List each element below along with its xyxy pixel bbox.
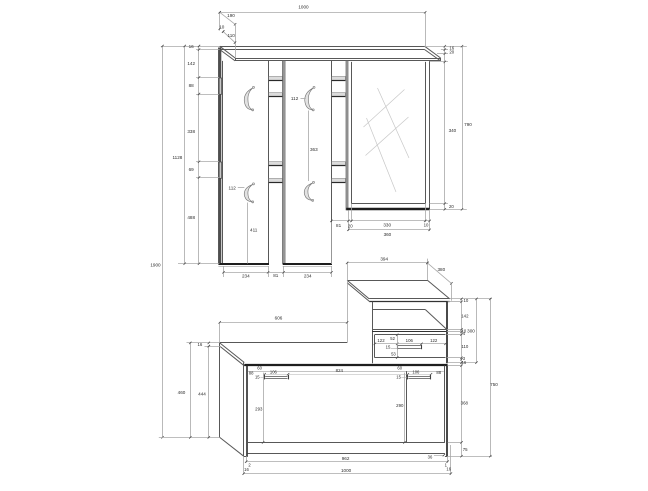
svg-text:36: 36 — [428, 454, 433, 459]
svg-text:88: 88 — [189, 83, 195, 88]
svg-text:962: 962 — [342, 456, 350, 461]
svg-text:20: 20 — [449, 50, 454, 55]
svg-text:460: 460 — [178, 390, 186, 395]
svg-text:142: 142 — [461, 314, 469, 319]
svg-text:293: 293 — [255, 407, 263, 412]
svg-text:750: 750 — [490, 382, 498, 387]
svg-text:790: 790 — [464, 122, 472, 127]
svg-text:330: 330 — [383, 223, 391, 228]
svg-text:444: 444 — [198, 392, 206, 397]
svg-text:110: 110 — [461, 344, 469, 349]
svg-text:16: 16 — [462, 360, 467, 365]
svg-text:16: 16 — [197, 342, 202, 347]
svg-text:69: 69 — [189, 167, 195, 172]
svg-text:88: 88 — [436, 370, 441, 375]
svg-text:112: 112 — [229, 185, 237, 190]
svg-text:380: 380 — [437, 267, 445, 272]
svg-text:112: 112 — [291, 96, 299, 101]
svg-text:363: 363 — [310, 147, 318, 152]
svg-text:15: 15 — [255, 375, 260, 380]
svg-text:10: 10 — [463, 298, 468, 303]
svg-text:75: 75 — [463, 447, 468, 452]
svg-text:10: 10 — [424, 223, 429, 228]
svg-text:20: 20 — [449, 204, 454, 209]
svg-text:15: 15 — [386, 345, 391, 350]
svg-text:106: 106 — [412, 370, 420, 375]
svg-text:290: 290 — [396, 403, 404, 408]
svg-text:106: 106 — [406, 338, 414, 343]
svg-text:122: 122 — [377, 338, 385, 343]
svg-text:234: 234 — [304, 274, 312, 279]
svg-text:234: 234 — [242, 274, 250, 279]
svg-text:411: 411 — [250, 227, 258, 232]
svg-text:1900: 1900 — [150, 263, 161, 268]
svg-text:1000: 1000 — [298, 5, 309, 10]
svg-text:394: 394 — [380, 256, 388, 261]
svg-text:1000: 1000 — [341, 468, 352, 473]
svg-text:16: 16 — [446, 467, 451, 472]
svg-text:20: 20 — [348, 223, 353, 228]
svg-text:122: 122 — [430, 338, 438, 343]
svg-text:110: 110 — [228, 33, 236, 38]
svg-text:106: 106 — [270, 370, 278, 375]
svg-text:606: 606 — [275, 315, 283, 320]
svg-text:824: 824 — [336, 368, 344, 373]
svg-text:60: 60 — [257, 366, 262, 371]
svg-text:360: 360 — [384, 232, 392, 237]
svg-text:15: 15 — [396, 375, 401, 380]
svg-text:338: 338 — [187, 129, 195, 134]
svg-text:16: 16 — [189, 44, 195, 49]
svg-text:1128: 1128 — [172, 155, 182, 160]
svg-text:190: 190 — [227, 13, 235, 18]
svg-text:53: 53 — [391, 351, 396, 356]
svg-text:488: 488 — [187, 215, 195, 220]
svg-text:81: 81 — [336, 223, 342, 228]
svg-text:88: 88 — [249, 371, 254, 376]
svg-text:368: 368 — [461, 401, 469, 406]
svg-text:16: 16 — [244, 467, 249, 472]
svg-text:52: 52 — [390, 336, 395, 341]
svg-text:340: 340 — [449, 128, 457, 133]
svg-text:60: 60 — [397, 366, 402, 371]
svg-text:300: 300 — [467, 328, 475, 333]
svg-text:142: 142 — [187, 61, 195, 66]
svg-text:81: 81 — [273, 273, 279, 278]
